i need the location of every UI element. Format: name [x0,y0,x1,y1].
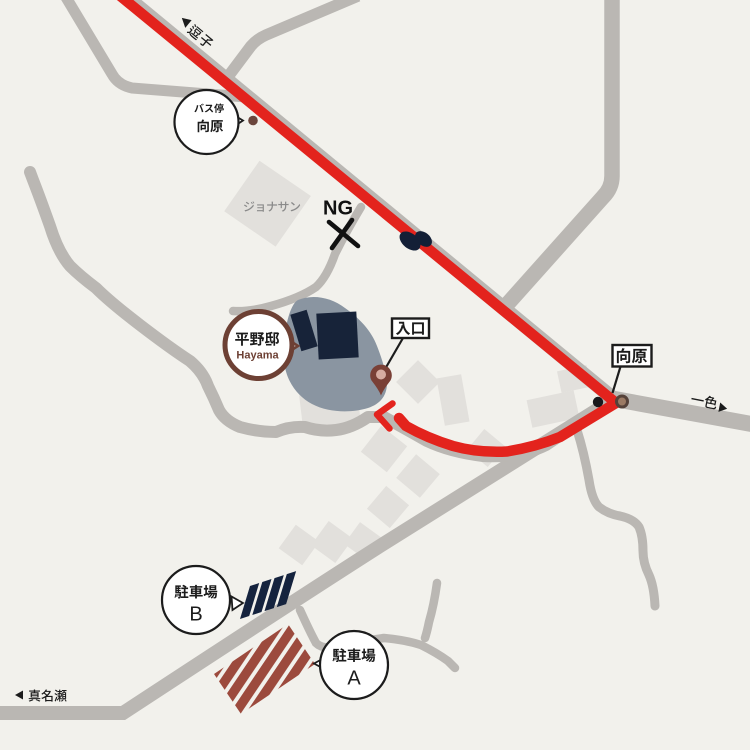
svg-text:B: B [189,604,202,626]
svg-text:Hayama: Hayama [236,350,279,362]
svg-text:A: A [347,668,361,690]
svg-text:NG: NG [323,198,353,220]
